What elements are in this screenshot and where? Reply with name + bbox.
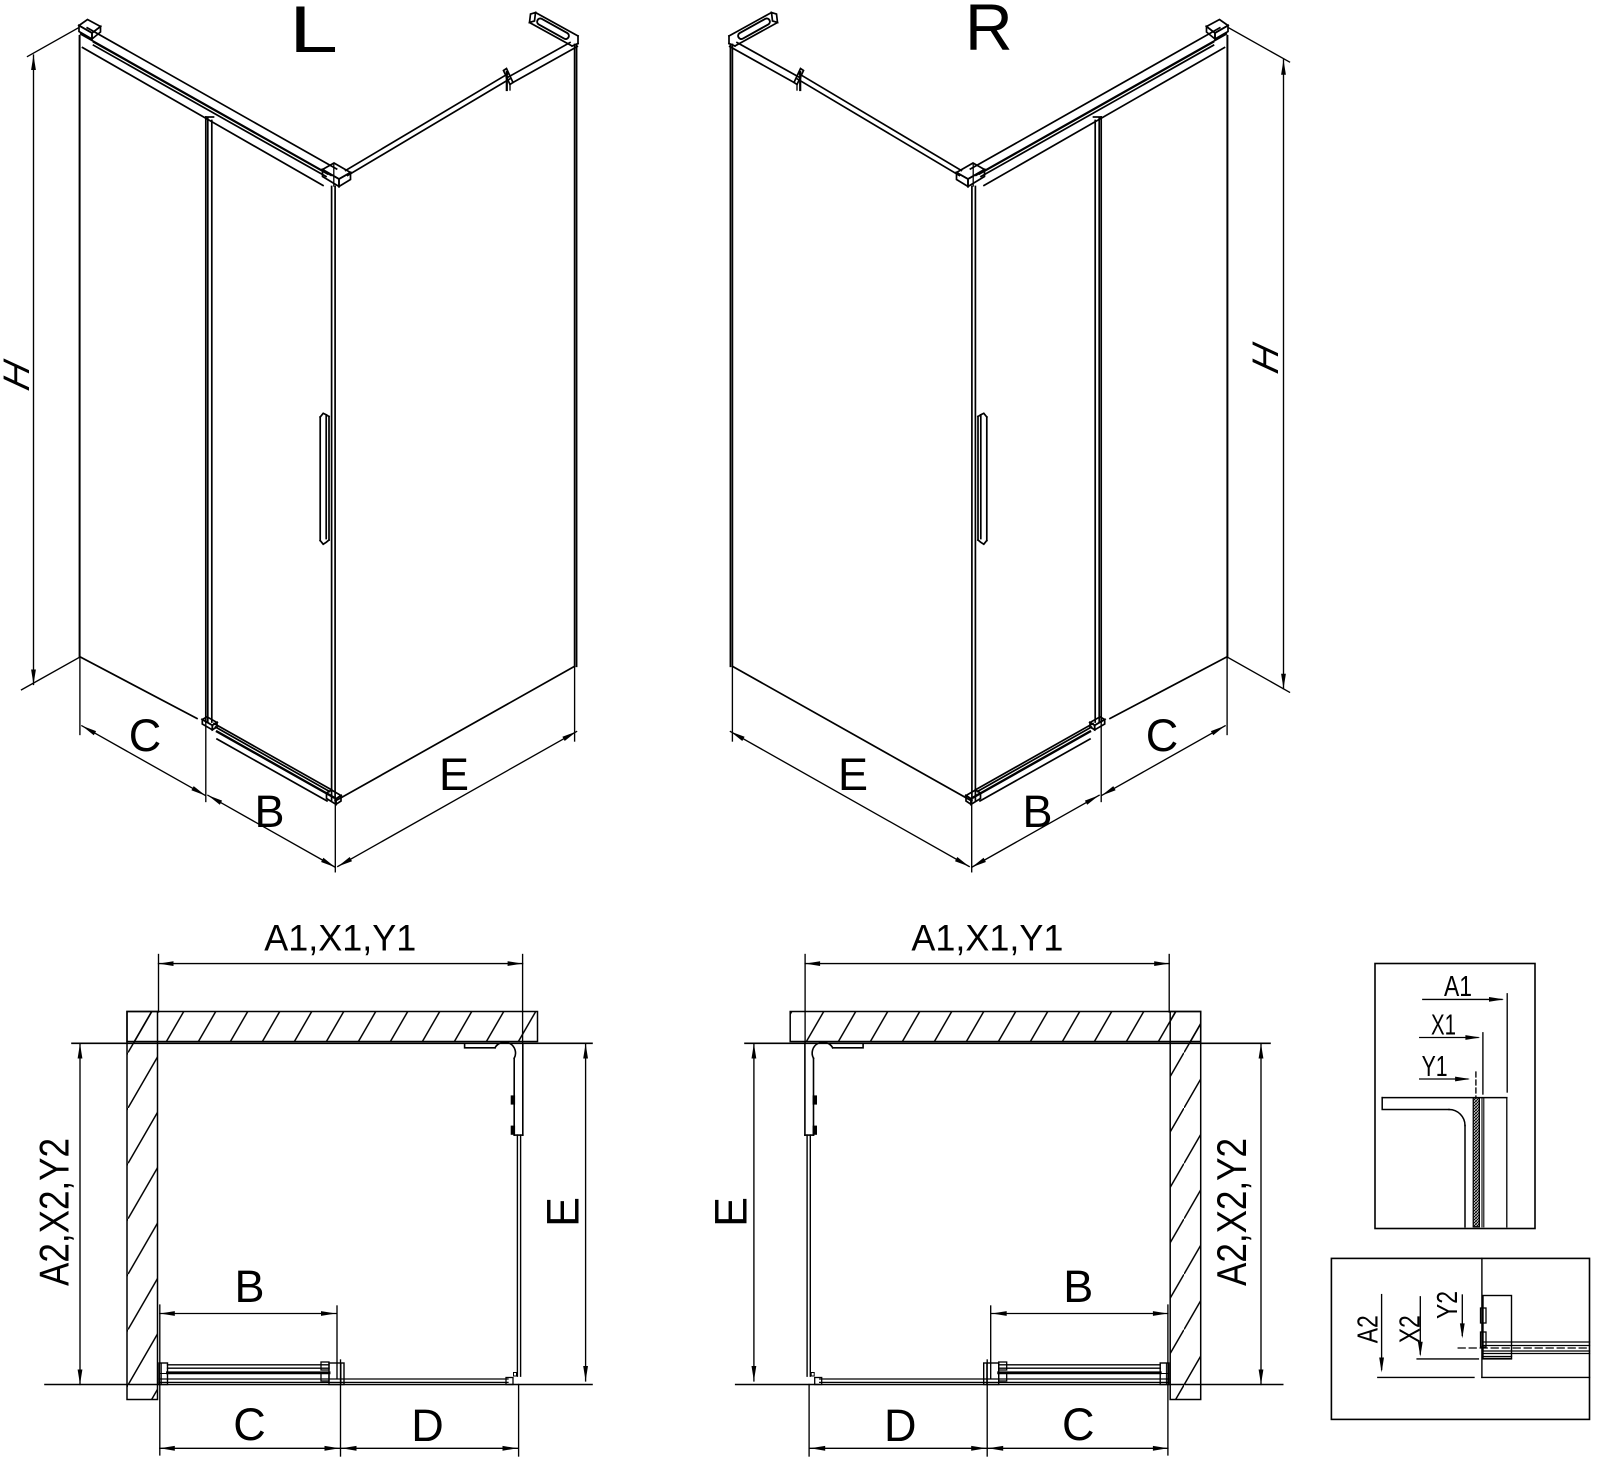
svg-text:R: R [965,0,1013,64]
svg-text:A1,X1,Y1: A1,X1,Y1 [911,918,1063,959]
svg-text:Y2: Y2 [1432,1291,1464,1319]
svg-text:A1,X1,Y1: A1,X1,Y1 [264,918,416,959]
svg-text:B: B [234,1261,264,1312]
svg-text:L: L [289,0,338,66]
svg-text:E: E [706,1197,757,1227]
svg-text:E: E [439,749,469,800]
svg-text:B: B [1063,1261,1093,1312]
svg-text:X2: X2 [1394,1315,1426,1343]
svg-text:X1: X1 [1431,1010,1456,1042]
svg-text:D: D [411,1400,444,1451]
svg-text:Y1: Y1 [1422,1051,1448,1083]
svg-text:A2,X2,Y2: A2,X2,Y2 [1208,1138,1255,1286]
svg-text:C: C [233,1399,266,1450]
svg-text:A2: A2 [1353,1315,1385,1343]
svg-text:A2,X2,Y2: A2,X2,Y2 [30,1138,77,1286]
svg-text:A1: A1 [1444,971,1472,1003]
svg-text:D: D [884,1400,917,1451]
svg-text:E: E [538,1197,589,1227]
svg-text:E: E [838,749,868,800]
svg-text:C: C [1146,710,1179,761]
svg-text:C: C [1062,1399,1095,1450]
svg-text:B: B [254,786,284,837]
svg-text:C: C [129,710,162,761]
svg-text:B: B [1022,786,1052,837]
